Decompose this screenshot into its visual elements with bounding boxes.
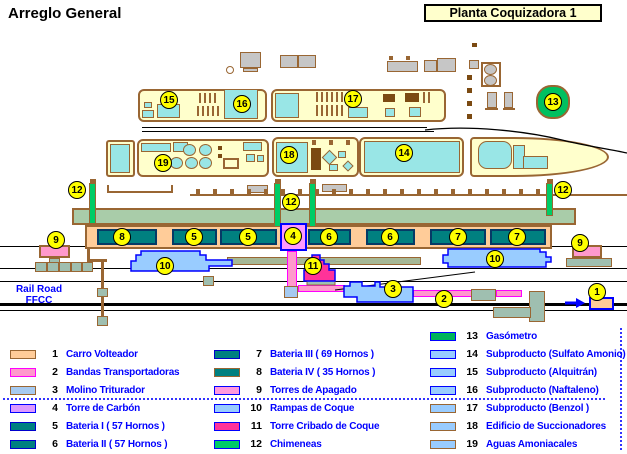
legend-label: Aguas Amoniacales xyxy=(486,439,577,450)
map-marker-7: 7 xyxy=(508,228,526,246)
legend-item-12: 12Chimeneas xyxy=(214,435,322,453)
legend-number: 11 xyxy=(240,420,262,432)
legend-label: Edificio de Succionadores xyxy=(486,421,606,432)
legend-swatch xyxy=(430,368,456,377)
map-marker-4: 4 xyxy=(284,227,302,245)
legend-swatch xyxy=(10,440,36,449)
legend-number: 18 xyxy=(456,420,478,432)
map-marker-18: 18 xyxy=(280,146,298,164)
legend-number: 13 xyxy=(456,330,478,342)
legend-number: 2 xyxy=(36,366,58,378)
legend-swatch xyxy=(214,368,240,377)
legend-number: 9 xyxy=(240,384,262,396)
legend-swatch xyxy=(430,332,456,341)
legend-item-14: 14Subproducto (Sulfato Amonio) xyxy=(430,345,626,363)
map-marker-15: 15 xyxy=(160,91,178,109)
legend-item-4: 4Torre de Carbón xyxy=(10,399,140,417)
legend-label: Bateria I ( 57 Hornos ) xyxy=(66,421,165,432)
legend-label: Bateria IV ( 35 Hornos ) xyxy=(270,367,375,378)
legend-label: Subproducto (Sulfato Amonio) xyxy=(486,349,626,360)
legend-item-1: 1Carro Volteador xyxy=(10,345,138,363)
map-marker-7: 7 xyxy=(449,228,467,246)
legend-label: Torres de Apagado xyxy=(270,385,357,396)
map-marker-14: 14 xyxy=(395,144,413,162)
crusher-3 xyxy=(344,282,413,302)
legend-swatch xyxy=(10,350,36,359)
legend-swatch xyxy=(430,440,456,449)
legend-number: 5 xyxy=(36,420,58,432)
legend-label: Molino Triturador xyxy=(66,385,145,396)
map-marker-6: 6 xyxy=(320,228,338,246)
legend-swatch xyxy=(430,350,456,359)
legend-swatch xyxy=(214,386,240,395)
legend-item-19: 19Aguas Amoniacales xyxy=(430,435,577,453)
legend-swatch xyxy=(430,404,456,413)
legend-number: 17 xyxy=(456,402,478,414)
map-marker-19: 19 xyxy=(154,154,172,172)
legend-number: 3 xyxy=(36,384,58,396)
legend-number: 4 xyxy=(36,402,58,414)
legend-item-17: 17Subproducto (Benzol ) xyxy=(430,399,589,417)
map-marker-9: 9 xyxy=(571,234,589,252)
map-marker-2: 2 xyxy=(435,290,453,308)
map-marker-13: 13 xyxy=(544,93,562,111)
legend-swatch xyxy=(214,404,240,413)
legend-item-2: 2Bandas Transportadoras xyxy=(10,363,179,381)
legend-item-10: 10Rampas de Coque xyxy=(214,399,354,417)
legend-swatch xyxy=(10,368,36,377)
legend-swatch xyxy=(10,422,36,431)
map-marker-17: 17 xyxy=(344,90,362,108)
map-marker-10: 10 xyxy=(486,250,504,268)
legend-swatch xyxy=(214,422,240,431)
plant-name-label: Planta Coquizadora 1 xyxy=(449,6,576,20)
legend-item-7: 7Bateria III ( 69 Hornos ) xyxy=(214,345,374,363)
map-marker-1: 1 xyxy=(588,283,606,301)
legend-swatch xyxy=(10,386,36,395)
flow-arrow-head xyxy=(576,298,585,308)
map-marker-5: 5 xyxy=(185,228,203,246)
legend-number: 15 xyxy=(456,366,478,378)
legend-swatch xyxy=(10,404,36,413)
plant-name-box: Planta Coquizadora 1 xyxy=(424,4,602,22)
map-marker-10: 10 xyxy=(156,257,174,275)
legend-item-3: 3Molino Triturador xyxy=(10,381,145,399)
legend-number: 1 xyxy=(36,348,58,360)
legend-number: 6 xyxy=(36,438,58,450)
legend-number: 12 xyxy=(240,438,262,450)
legend-label: Gasómetro xyxy=(486,331,537,342)
map-marker-6: 6 xyxy=(381,228,399,246)
legend-number: 8 xyxy=(240,366,262,378)
legend-swatch xyxy=(430,386,456,395)
legend-label: Bandas Transportadoras xyxy=(66,367,179,378)
rail-curve xyxy=(425,128,627,153)
legend-number: 10 xyxy=(240,402,262,414)
legend-label: Torre Cribado de Coque xyxy=(270,421,379,432)
map-marker-9: 9 xyxy=(47,231,65,249)
legend-item-16: 16Subproducto (Naftaleno) xyxy=(430,381,599,399)
legend-number: 14 xyxy=(456,348,478,360)
legend-label: Bateria III ( 69 Hornos ) xyxy=(270,349,374,360)
legend-item-13: 13Gasómetro xyxy=(430,327,537,345)
coke-ramp-left xyxy=(131,251,232,271)
legend-label: Subproducto (Alquitrán) xyxy=(486,367,597,378)
legend-number: 7 xyxy=(240,348,262,360)
map-marker-5: 5 xyxy=(239,228,257,246)
map-marker-12: 12 xyxy=(554,181,572,199)
legend-item-11: 11Torre Cribado de Coque xyxy=(214,417,379,435)
legend-item-6: 6Bateria II ( 57 Hornos ) xyxy=(10,435,167,453)
map-marker-3: 3 xyxy=(384,280,402,298)
page-title: Arreglo General xyxy=(8,5,121,22)
map-marker-8: 8 xyxy=(113,228,131,246)
map-marker-16: 16 xyxy=(233,95,251,113)
legend-item-18: 18Edificio de Succionadores xyxy=(430,417,606,435)
legend-label: Subproducto (Benzol ) xyxy=(486,403,589,414)
map-marker-12: 12 xyxy=(68,181,86,199)
legend-label: Chimeneas xyxy=(270,439,322,450)
legend-label: Bateria II ( 57 Hornos ) xyxy=(66,439,167,450)
legend-item-8: 8Bateria IV ( 35 Hornos ) xyxy=(214,363,375,381)
legend-swatch xyxy=(430,422,456,431)
legend-item-9: 9Torres de Apagado xyxy=(214,381,357,399)
legend-number: 19 xyxy=(456,438,478,450)
legend-number: 16 xyxy=(456,384,478,396)
legend-label: Subproducto (Naftaleno) xyxy=(486,385,599,396)
legend-item-15: 15Subproducto (Alquitrán) xyxy=(430,363,597,381)
plant-layout-diagram: Arreglo General Planta Coquizadora 1 xyxy=(0,0,627,454)
legend-label: Rampas de Coque xyxy=(270,403,354,414)
legend-label: Carro Volteador xyxy=(66,349,138,360)
legend-swatch xyxy=(214,440,240,449)
map-marker-12: 12 xyxy=(282,193,300,211)
legend-item-5: 5Bateria I ( 57 Hornos ) xyxy=(10,417,165,435)
legend-swatch xyxy=(214,350,240,359)
map-marker-11: 11 xyxy=(304,257,322,275)
legend-label: Torre de Carbón xyxy=(66,403,140,414)
